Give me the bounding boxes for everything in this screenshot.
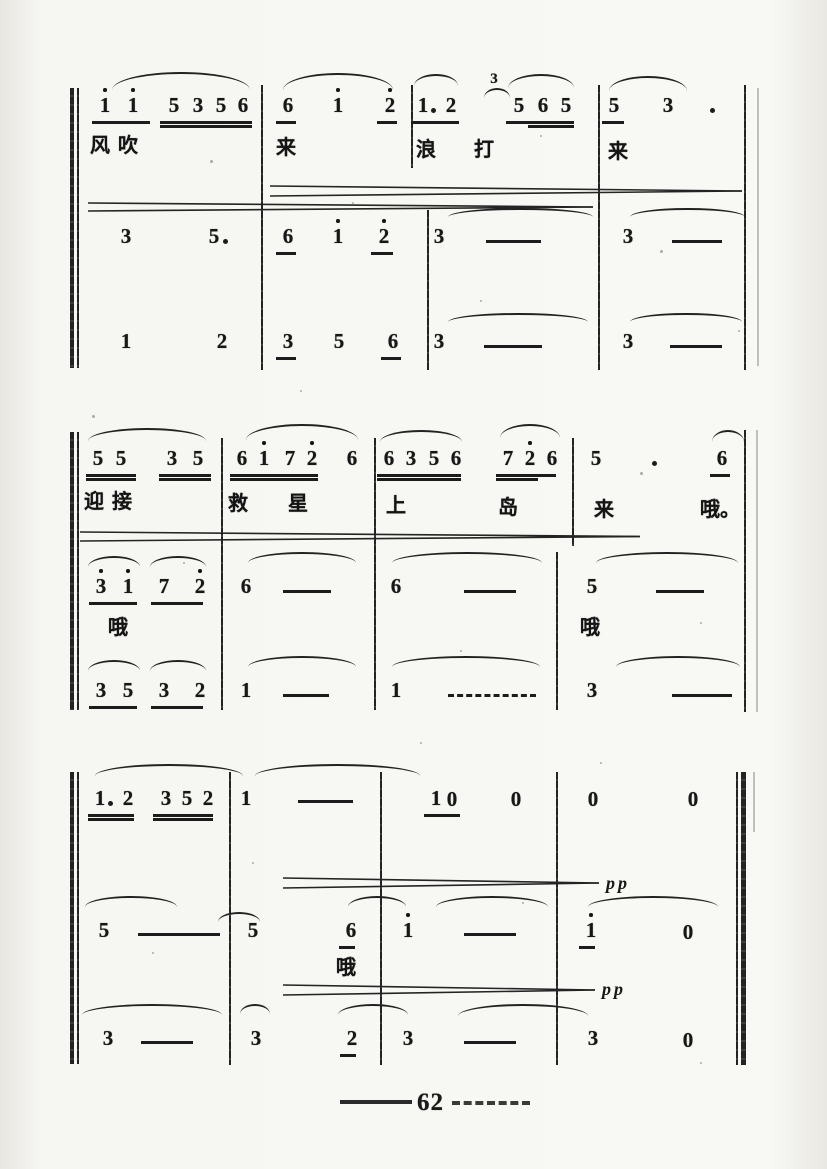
beam-line — [151, 602, 203, 605]
note-digit: 6 — [343, 920, 359, 941]
hairpin-lines — [283, 876, 599, 890]
note-digit: 6 — [388, 576, 404, 597]
duration-dash — [141, 1041, 193, 1044]
octave-dot — [336, 219, 340, 223]
note-digit: 1 — [238, 788, 254, 809]
scanned-score-page: 11535661212356553风吹来浪打来35612331235633553… — [0, 0, 827, 1169]
note-digit: 1 — [120, 576, 136, 597]
scan-speck — [522, 902, 524, 904]
note-digit: 5 — [511, 95, 527, 116]
duration-dash — [298, 800, 353, 803]
note-digit: 6 — [385, 331, 401, 352]
beam-line — [579, 946, 595, 949]
scan-speck — [460, 650, 462, 652]
dynamic-pp: pp — [602, 980, 626, 998]
duration-dash — [486, 240, 541, 243]
barline — [221, 438, 223, 710]
note-digit: 6 — [714, 448, 730, 469]
note-digit: 2 — [192, 680, 208, 701]
beam-line — [528, 125, 574, 128]
note-digit: 1 — [92, 788, 108, 809]
barline — [261, 85, 263, 370]
barline — [70, 772, 74, 1064]
note-digit: 2 — [200, 788, 216, 809]
duration-dash — [464, 933, 516, 936]
note-digit: 3 — [190, 95, 206, 116]
note-digit: 5 — [166, 95, 182, 116]
scan-speck — [738, 330, 740, 332]
duration-dash — [672, 694, 732, 697]
note-digit: 6 — [280, 95, 296, 116]
barline — [411, 85, 413, 168]
note-digit: 2 — [192, 576, 208, 597]
barline — [380, 772, 382, 1065]
scan-speck — [660, 250, 663, 253]
beam-line — [496, 474, 556, 477]
beam-line — [153, 818, 213, 821]
note-digit: 5 — [96, 920, 112, 941]
beam-line — [88, 818, 134, 821]
scan-speck — [252, 862, 254, 864]
scan-speck — [700, 622, 702, 624]
note-digit: 5 — [120, 680, 136, 701]
beam-line — [151, 706, 203, 709]
lyric-syllable: 风 — [90, 134, 110, 156]
slur-arc — [484, 88, 510, 98]
lyric-syllable: 接 — [112, 490, 132, 512]
note-digit: 7 — [282, 448, 298, 469]
augmentation-dot — [431, 108, 436, 113]
note-digit: 3 — [584, 680, 600, 701]
beam-line — [92, 121, 150, 124]
duration-dash — [484, 345, 542, 348]
beam-line — [276, 121, 296, 124]
barline — [77, 88, 79, 368]
note-digit: 1 — [330, 226, 346, 247]
slur-arc — [283, 73, 393, 90]
note-digit: 3 — [164, 448, 180, 469]
note-digit: 3 — [486, 72, 502, 87]
beam-line — [89, 706, 137, 709]
slur-arc — [448, 313, 588, 322]
decrescendo-hairpin — [283, 876, 599, 890]
barline — [598, 85, 600, 370]
note-digit: 0 — [685, 789, 701, 810]
beam-line — [276, 252, 296, 255]
note-digit: 5 — [584, 576, 600, 597]
note-digit: 0 — [585, 789, 601, 810]
hairpin-lines — [283, 983, 595, 997]
note-digit: 3 — [400, 1028, 416, 1049]
octave-dot — [310, 441, 314, 445]
slur-arc — [596, 552, 738, 563]
octave-dot — [126, 569, 130, 573]
footer-rule-left — [340, 1100, 412, 1104]
beam-line — [377, 474, 461, 477]
barline — [556, 552, 558, 710]
note-digit: 3 — [248, 1028, 264, 1049]
note-digit: 6 — [544, 448, 560, 469]
scan-speck — [92, 415, 95, 418]
slur-arc — [88, 556, 140, 567]
lyric-syllable: 救 — [228, 492, 248, 514]
beam-line — [86, 474, 136, 477]
slur-arc — [588, 896, 718, 907]
decrescendo-hairpin — [270, 184, 742, 198]
octave-dot — [103, 88, 107, 92]
beam-line — [160, 121, 252, 124]
note-digit: 3 — [431, 226, 447, 247]
note-digit: 1 — [238, 680, 254, 701]
slur-arc — [609, 76, 687, 91]
note-digit: 3 — [403, 448, 419, 469]
slur-arc — [630, 208, 745, 217]
augmentation-dot — [108, 801, 113, 806]
barline — [741, 772, 746, 1065]
slur-arc — [348, 896, 406, 907]
slur-arc — [150, 556, 206, 567]
slur-arc — [436, 896, 548, 907]
note-digit: 5 — [206, 226, 222, 247]
slur-arc — [380, 430, 462, 442]
slur-arc — [82, 1004, 222, 1015]
slur-arc — [392, 656, 540, 667]
note-digit: 2 — [382, 95, 398, 116]
barline — [77, 432, 79, 710]
note-digit: 3 — [93, 576, 109, 597]
slur-arc — [88, 660, 140, 671]
page-edge-line — [753, 772, 755, 832]
barline — [736, 772, 738, 1065]
duration-dash — [464, 1041, 516, 1044]
slur-arc — [85, 896, 177, 907]
note-digit: 0 — [508, 789, 524, 810]
note-digit: 1 — [256, 448, 272, 469]
beam-line — [339, 946, 355, 949]
note-digit: 3 — [620, 331, 636, 352]
lyric-syllable: 来 — [276, 136, 296, 158]
scan-speck — [600, 762, 602, 764]
beam-line — [153, 814, 213, 817]
barline — [374, 438, 376, 710]
scan-speck — [210, 160, 213, 163]
note-digit: 1 — [583, 920, 599, 941]
barline — [77, 772, 79, 1064]
slur-arc — [255, 764, 420, 776]
note-digit: 5 — [213, 95, 229, 116]
note-digit: 5 — [331, 331, 347, 352]
duration-dash — [283, 694, 329, 697]
octave-dot — [198, 569, 202, 573]
barline — [556, 772, 558, 1065]
slur-arc — [458, 1004, 588, 1016]
lyric-syllable: 来 — [594, 498, 614, 520]
octave-dot — [406, 913, 410, 917]
slur-arc — [414, 74, 458, 86]
page-number: 62 — [417, 1090, 444, 1115]
scan-speck — [480, 300, 482, 302]
note-digit: 3 — [100, 1028, 116, 1049]
lyric-syllable: 打 — [474, 138, 494, 160]
lyric-syllable: 哦 — [336, 956, 356, 978]
slur-arc — [150, 660, 206, 671]
slur-arc — [500, 424, 560, 438]
slur-arc — [712, 430, 744, 442]
note-digit: 5 — [113, 448, 129, 469]
note-digit: 1 — [400, 920, 416, 941]
beam-line — [602, 121, 624, 124]
beam-line — [159, 478, 211, 481]
barline — [744, 85, 746, 370]
duration-dash — [672, 240, 722, 243]
note-digit: 6 — [238, 576, 254, 597]
note-digit: 2 — [120, 788, 136, 809]
duration-dash — [464, 590, 516, 593]
octave-dot — [528, 441, 532, 445]
note-digit: 1 — [97, 95, 113, 116]
note-digit: 0 — [680, 922, 696, 943]
note-digit: 3 — [431, 331, 447, 352]
barline — [427, 210, 429, 370]
lyric-syllable: 上 — [386, 494, 406, 516]
note-digit: 3 — [93, 680, 109, 701]
beam-line — [276, 357, 296, 360]
note-digit: 2 — [304, 448, 320, 469]
note-digit: 3 — [158, 788, 174, 809]
note-digit: 5 — [90, 448, 106, 469]
scan-speck — [183, 562, 185, 564]
octave-dot — [262, 441, 266, 445]
note-digit: 6 — [344, 448, 360, 469]
note-digit: 3 — [280, 331, 296, 352]
note-digit: 5 — [558, 95, 574, 116]
scan-speck — [152, 952, 154, 954]
note-digit: 3 — [585, 1028, 601, 1049]
beam-line — [86, 478, 136, 481]
note-digit: 3 — [660, 95, 676, 116]
note-digit: 0 — [444, 789, 460, 810]
note-digit: 3 — [620, 226, 636, 247]
note-digit: 1 — [330, 95, 346, 116]
lyric-syllable: 迎 — [84, 490, 104, 512]
note-digit: 5 — [588, 448, 604, 469]
slur-arc — [248, 552, 356, 563]
lyric-syllable: 哦 — [580, 616, 600, 638]
beam-line — [230, 478, 318, 481]
beam-line — [411, 121, 459, 124]
duration-dash — [448, 694, 536, 697]
lyric-syllable: 星 — [288, 492, 308, 514]
beam-line — [424, 814, 460, 817]
duration-dash — [283, 590, 331, 593]
augmentation-dot — [652, 461, 657, 466]
note-digit: 2 — [522, 448, 538, 469]
note-digit: 2 — [376, 226, 392, 247]
note-digit: 5 — [190, 448, 206, 469]
hairpin-lines — [80, 530, 640, 543]
beam-line — [160, 125, 252, 128]
note-digit: 1 — [415, 95, 431, 116]
note-digit: 6 — [235, 95, 251, 116]
octave-dot — [99, 569, 103, 573]
page-edge-line — [756, 430, 758, 712]
note-digit: 3 — [118, 226, 134, 247]
barline — [70, 432, 74, 710]
decrescendo-hairpin — [80, 530, 640, 543]
lyric-syllable: 哦 — [108, 616, 128, 638]
note-digit: 6 — [234, 448, 250, 469]
augmentation-dot — [223, 239, 228, 244]
beam-line — [340, 1054, 356, 1057]
note-digit: 6 — [381, 448, 397, 469]
duration-dash — [138, 933, 220, 936]
duration-dash — [656, 590, 704, 593]
lyric-syllable: 浪 — [416, 138, 436, 160]
scan-speck — [352, 202, 354, 204]
beam-line — [230, 474, 318, 477]
note-digit: 7 — [156, 576, 172, 597]
slur-arc — [240, 1004, 270, 1014]
note-digit: 2 — [443, 95, 459, 116]
slur-arc — [95, 764, 243, 776]
note-digit: 7 — [500, 448, 516, 469]
page-edge-line — [757, 88, 759, 366]
octave-dot — [589, 913, 593, 917]
note-digit: 2 — [344, 1028, 360, 1049]
slur-arc — [112, 72, 250, 90]
lyric-syllable: 吹 — [118, 134, 138, 156]
beam-line — [381, 357, 401, 360]
scan-speck — [300, 390, 302, 392]
beam-line — [159, 474, 211, 477]
beam-line — [88, 814, 134, 817]
beam-line — [710, 474, 730, 477]
beam-line — [496, 478, 538, 481]
scan-speck — [540, 135, 542, 137]
slur-arc — [508, 74, 574, 88]
note-digit: 5 — [426, 448, 442, 469]
decrescendo-hairpin — [283, 983, 595, 997]
note-digit: 5 — [606, 95, 622, 116]
scan-speck — [420, 742, 422, 744]
barline — [70, 88, 74, 368]
slur-arc — [88, 428, 206, 441]
hairpin-lines — [270, 184, 742, 198]
lyric-syllable: 哦。 — [700, 498, 740, 520]
note-digit: 6 — [280, 226, 296, 247]
note-digit: 3 — [156, 680, 172, 701]
scan-speck — [640, 472, 643, 475]
note-digit: 5 — [245, 920, 261, 941]
lyric-syllable: 岛 — [498, 496, 518, 518]
note-digit: 1 — [125, 95, 141, 116]
lyric-syllable: 来 — [608, 140, 628, 162]
slur-arc — [616, 656, 740, 667]
beam-line — [89, 602, 137, 605]
note-digit: 1 — [118, 331, 134, 352]
note-digit: 0 — [680, 1030, 696, 1051]
note-digit: 2 — [214, 331, 230, 352]
octave-dot — [382, 219, 386, 223]
scan-speck — [700, 1062, 702, 1064]
slur-arc — [630, 313, 742, 322]
note-digit: 5 — [179, 788, 195, 809]
score-canvas: 11535661212356553风吹来浪打来35612331235633553… — [0, 0, 827, 1169]
beam-line — [506, 121, 574, 124]
slur-arc — [392, 552, 542, 563]
note-digit: 1 — [428, 788, 444, 809]
duration-dash — [670, 345, 722, 348]
slur-arc — [248, 656, 356, 667]
beam-line — [371, 252, 393, 255]
barline — [744, 430, 746, 712]
slur-arc — [246, 424, 358, 440]
slur-arc — [338, 1004, 408, 1015]
beam-line — [377, 121, 397, 124]
note-digit: 1 — [388, 680, 404, 701]
dynamic-pp: pp — [606, 874, 630, 892]
augmentation-dot — [710, 108, 715, 113]
note-digit: 6 — [448, 448, 464, 469]
note-digit: 6 — [535, 95, 551, 116]
beam-line — [377, 478, 461, 481]
footer-rule-right — [452, 1101, 530, 1105]
